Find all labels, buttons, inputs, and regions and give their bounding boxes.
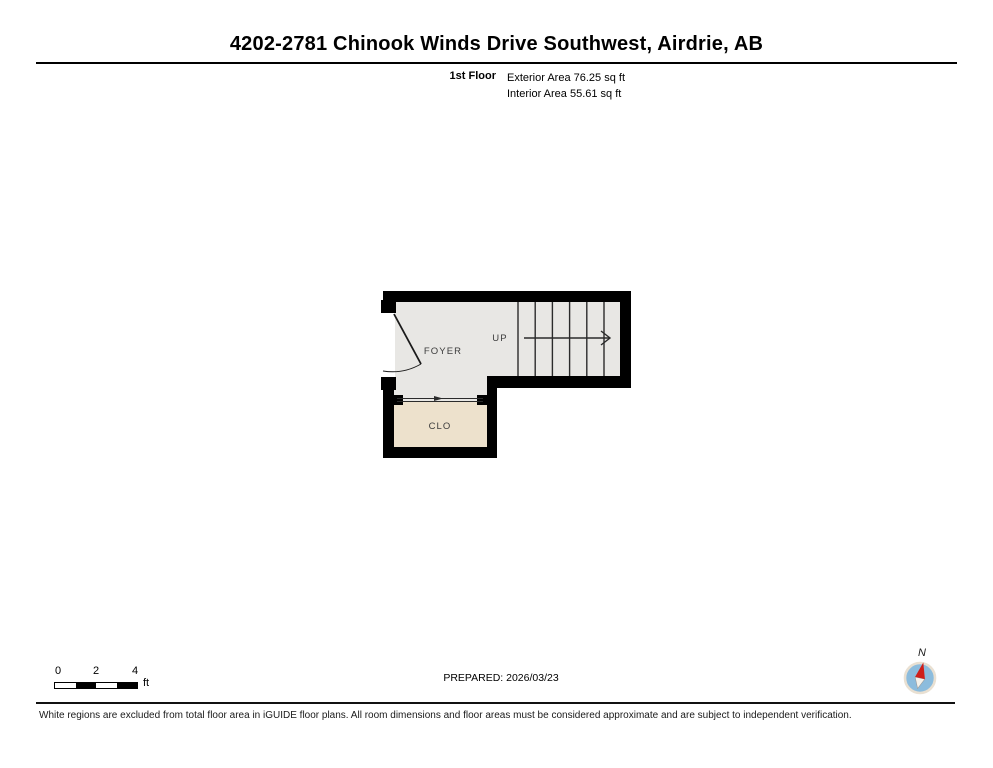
exterior-area-label: Exterior Area 76.25 sq ft [507, 70, 625, 86]
door-jamb-bottom [381, 377, 396, 390]
floor-plan-drawing: FOYER UP CLO [375, 285, 637, 465]
floor-name-label: 1st Floor [376, 70, 496, 82]
floor-plan-page: 4202-2781 Chinook Winds Drive Southwest,… [0, 0, 993, 768]
interior-area-label: Interior Area 55.61 sq ft [507, 86, 625, 102]
compass-icon: N [898, 642, 942, 698]
disclaimer-text: White regions are excluded from total fl… [39, 710, 969, 721]
foyer-label: FOYER [424, 346, 462, 357]
compass-north-label: N [918, 647, 926, 659]
stairs-up-label: UP [492, 333, 507, 344]
footer-divider [36, 702, 955, 704]
closet-label: CLO [429, 421, 452, 432]
prepared-date-label: PREPARED: 2026/03/23 [0, 672, 993, 684]
page-title: 4202-2781 Chinook Winds Drive Southwest,… [0, 33, 993, 56]
door-jamb-top [381, 300, 396, 313]
title-divider [36, 62, 957, 64]
door-opening [380, 313, 395, 377]
area-summary: Exterior Area 76.25 sq ft Interior Area … [507, 70, 625, 102]
